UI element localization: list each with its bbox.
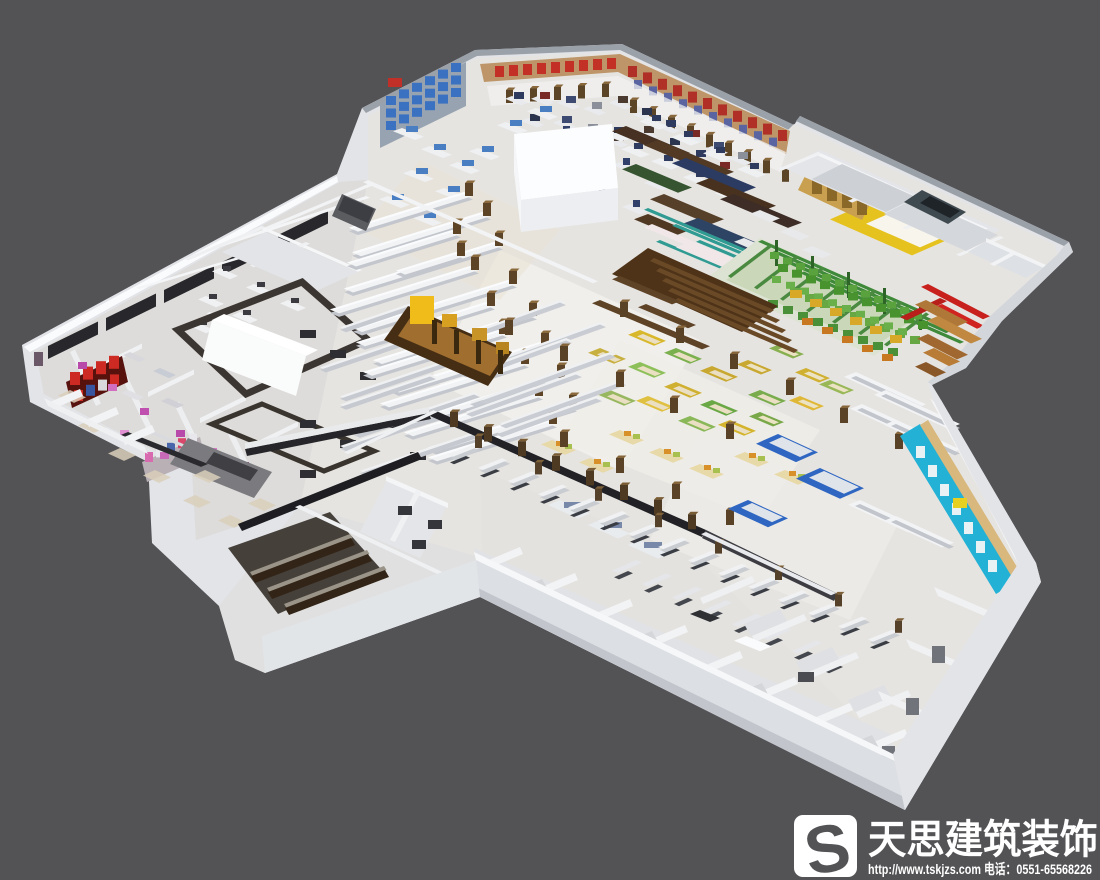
svg-text:天思建筑装饰: 天思建筑装饰	[868, 818, 1098, 862]
svg-text:http://www.tskjzs.com 电话：0551-: http://www.tskjzs.com 电话：0551-65568226	[868, 861, 1092, 877]
